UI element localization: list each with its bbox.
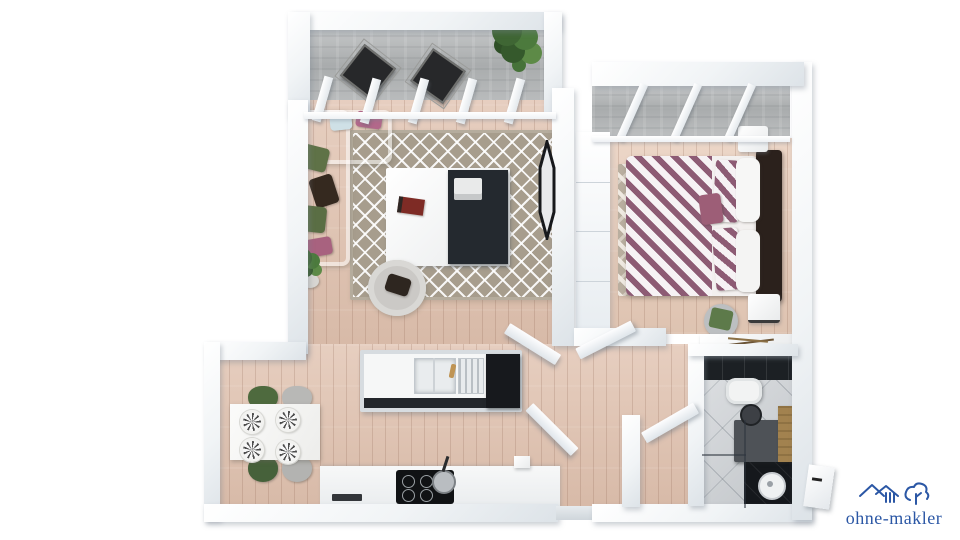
plate-icon xyxy=(276,408,300,432)
dining-nook-top-wall xyxy=(206,342,306,360)
bed-pillow-accent-mauve xyxy=(698,193,724,226)
counter-board xyxy=(514,456,530,468)
toilet xyxy=(726,378,762,404)
plate-icon xyxy=(240,410,264,434)
entrance-threshold xyxy=(556,506,594,520)
brand-text: ohne-makler xyxy=(834,508,954,529)
window-sill xyxy=(304,112,556,119)
plate-icon xyxy=(276,440,300,464)
logo-houses-tree-icon xyxy=(858,480,930,510)
shower-glass-partition xyxy=(744,420,746,508)
bottom-outer-wall-left xyxy=(204,504,558,522)
frying-pan-icon xyxy=(432,470,456,494)
nightstand xyxy=(748,294,780,323)
bedroom-top-wall xyxy=(592,62,804,86)
shower-head-center xyxy=(767,481,773,487)
skylight-ledge xyxy=(592,136,790,142)
typewriter-icon xyxy=(454,178,482,200)
bathroom-top-wall xyxy=(688,344,798,356)
balcony-parapet-top xyxy=(292,12,560,30)
left-outer-wall xyxy=(288,100,308,354)
shower-glass-partition xyxy=(702,454,746,456)
plate-icon xyxy=(240,438,264,462)
floorplan-render: ohne-makler xyxy=(0,0,960,540)
oven-vent xyxy=(332,494,362,501)
wall-tv-icon xyxy=(536,140,558,240)
dish-rack-icon xyxy=(458,358,484,394)
bathroom-left-wall xyxy=(688,348,704,506)
sink-divider xyxy=(433,358,435,392)
bed-pillow-white xyxy=(736,158,760,222)
book-icon xyxy=(397,196,425,215)
kitchen-island-dark-block xyxy=(486,354,520,408)
bed-pillow-white xyxy=(736,230,760,292)
wardrobe xyxy=(576,132,610,330)
kitchen-island-cabinet-front xyxy=(364,398,486,408)
right-outer-wall xyxy=(792,62,812,520)
left-outer-wall-lower xyxy=(204,342,220,520)
hall-closet-wall xyxy=(622,415,640,507)
ohne-makler-logo[interactable]: ohne-makler xyxy=(834,480,954,532)
bedroom-stool-cushion-green xyxy=(708,307,734,331)
bed-duvet-striped xyxy=(626,156,712,296)
shower-glass-door-exterior xyxy=(803,464,835,509)
